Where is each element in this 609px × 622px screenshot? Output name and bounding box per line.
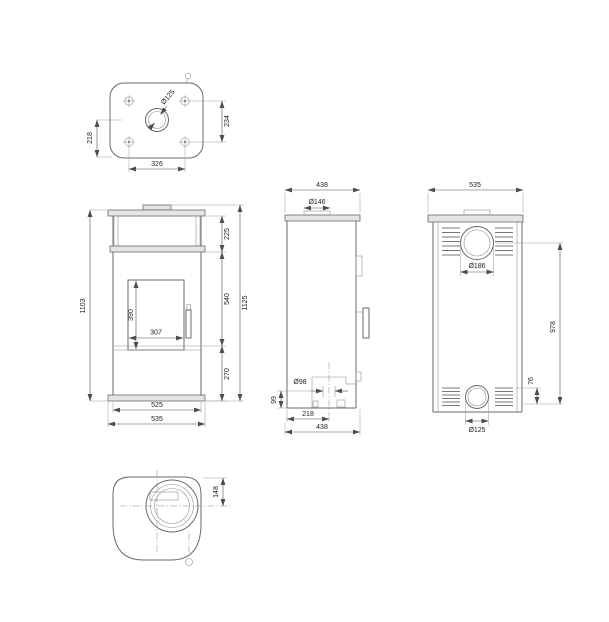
air-inlet-housing: [312, 377, 356, 408]
dim-label-inlet-height: 99: [271, 396, 278, 404]
door-glass: [128, 280, 184, 350]
dim-label-inlet-offset: 218: [302, 411, 314, 418]
side-view: 438 Ø146 Ø98: [271, 182, 369, 435]
dim-label-body-height: 1103: [80, 298, 87, 313]
dim-label-collar-diameter: Ø146: [308, 199, 325, 206]
flue-collar-side: [304, 211, 330, 215]
dim-label-top-depth: 438: [316, 182, 328, 189]
bottom-view: 148: [113, 470, 232, 566]
top-plate-outline: [110, 83, 203, 158]
vent-grille-bottom-right: [495, 388, 513, 406]
front-view: 390 307 1103 225 540 270 1125 525 535: [80, 205, 249, 427]
rear-view: 535 Ø186: [428, 182, 563, 434]
top-plate-side: [285, 215, 360, 221]
top-view: Ø125 218 234 326: [87, 73, 231, 172]
dim-label-outlet-height: 978: [550, 321, 557, 333]
dim-label-flue-center-offset: 148: [213, 486, 220, 498]
dim-label-rear-width: 535: [469, 182, 481, 189]
dim-label-door-section: 540: [224, 293, 231, 305]
door-handle-side: [363, 308, 369, 338]
base-plate-front: [108, 395, 205, 401]
vent-grille-bottom-left: [442, 388, 460, 406]
shelf-slab: [110, 246, 205, 252]
vent-grille-top-right: [495, 228, 513, 255]
flue-collar-front: [143, 205, 171, 210]
dim-label-glass-width: 307: [150, 330, 162, 337]
top-plate-rear: [428, 215, 523, 222]
latch-bracket: [356, 372, 361, 381]
dim-label-top-234: 234: [224, 115, 231, 127]
dim-label-top-218: 218: [87, 132, 94, 144]
dim-label-total-depth: 438: [316, 424, 328, 431]
rear-inlet-hole: [466, 386, 489, 409]
door-handle-icon: [186, 305, 191, 339]
dim-label-total-width: 535: [151, 416, 163, 423]
shelf-post-right: [196, 216, 200, 246]
dim-label-inlet-offset-rear: 76: [528, 377, 535, 385]
rear-outlet-hole: [461, 227, 494, 260]
dim-label-shelf-height: 225: [224, 228, 231, 240]
vent-grille-top-left: [442, 228, 460, 255]
dim-label-body-width: 525: [151, 402, 163, 409]
damper-knob-bottom-icon: [186, 559, 193, 566]
flue-collar-rear: [464, 210, 490, 215]
dim-label-base-section: 270: [224, 368, 231, 380]
shelf-post-left: [114, 216, 118, 246]
dim-label-glass-height: 390: [128, 309, 135, 321]
dim-label-inlet-diameter: Ø98: [293, 379, 306, 386]
damper-knob-icon: [185, 73, 190, 78]
drawing-canvas: Ø125 218 234 326 390: [0, 0, 609, 622]
top-plate-front: [108, 210, 205, 216]
dim-label-inlet-hole-diameter: Ø125: [468, 427, 485, 434]
dim-label-outlet-hole-diameter: Ø186: [468, 263, 485, 270]
dim-label-total-height: 1125: [242, 295, 249, 310]
technical-drawing: Ø125 218 234 326 390: [0, 0, 609, 622]
dim-label-top-326: 326: [151, 161, 163, 168]
hinge-bracket: [356, 256, 362, 276]
